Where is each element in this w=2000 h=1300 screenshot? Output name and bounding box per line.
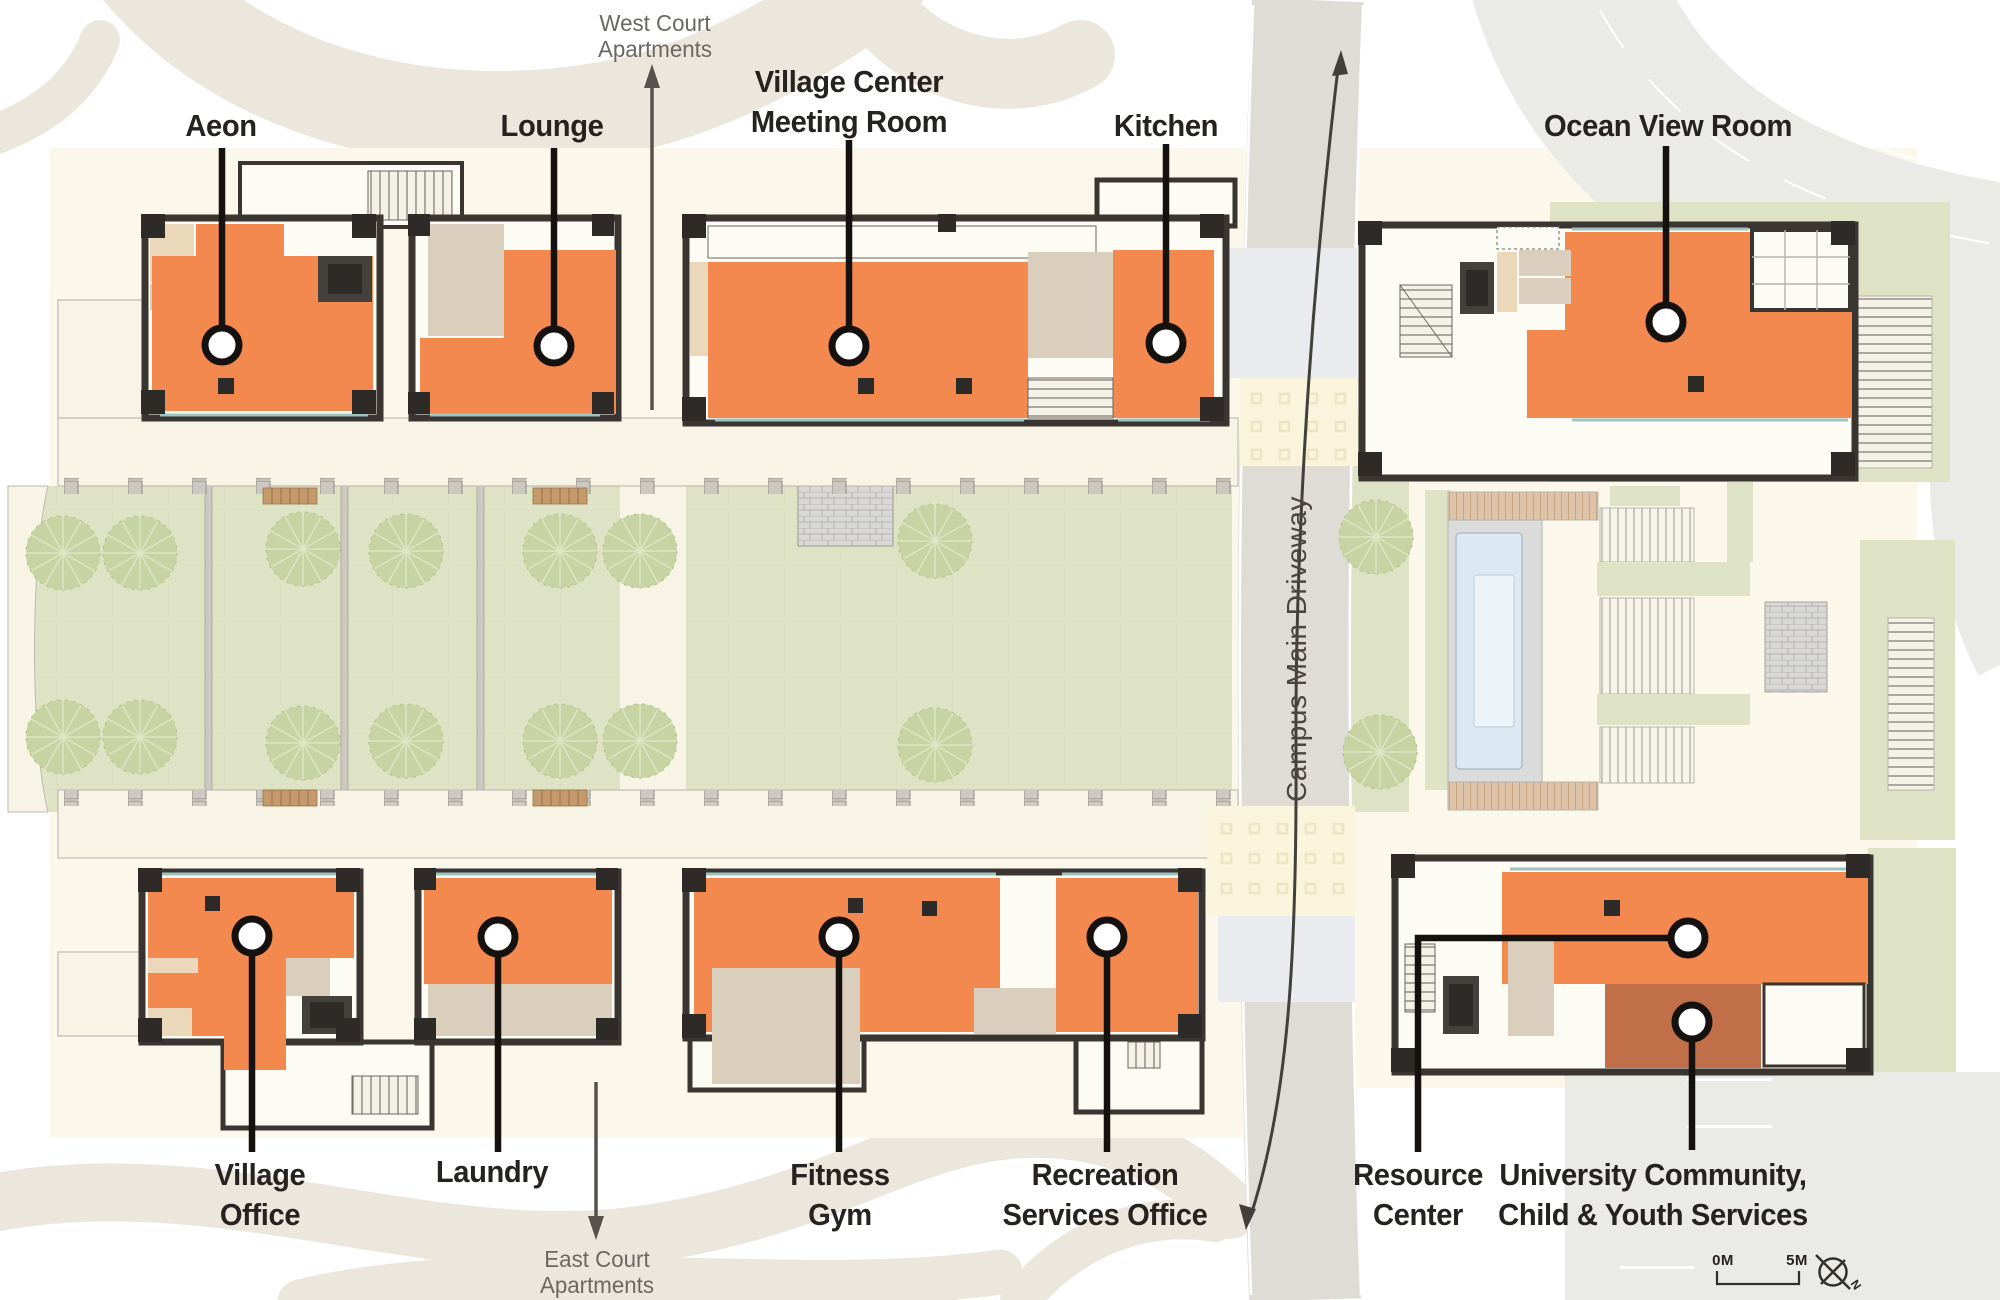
floor-plan-page: Aeon Lounge Village Center Meeting Room … xyxy=(0,0,2000,1300)
floor-plan-map xyxy=(0,0,2000,1300)
label-west-court: West Court Apartments xyxy=(598,10,712,62)
marker-kitchen xyxy=(1149,326,1183,360)
building-meeting-kitchen xyxy=(682,180,1235,423)
label-lounge: Lounge xyxy=(501,106,604,146)
marker-lounge xyxy=(537,329,571,363)
marker-aeon xyxy=(205,328,239,362)
marker-ocean xyxy=(1649,305,1683,339)
label-resource: Resource Center xyxy=(1353,1155,1483,1236)
marker-recreation xyxy=(1090,920,1124,954)
wood-deck xyxy=(1448,782,1598,810)
driveway-pad-bottom xyxy=(1218,916,1355,1002)
label-east-court: East Court Apartments xyxy=(540,1246,654,1298)
paver-square xyxy=(1765,602,1827,692)
plaza-stairs xyxy=(1600,508,1694,562)
label-aeon: Aeon xyxy=(185,106,256,146)
plaza-stairs xyxy=(1600,598,1694,694)
building-laundry xyxy=(414,868,618,1042)
marker-laundry xyxy=(481,920,515,954)
plaza-stairs xyxy=(1600,727,1694,783)
label-village-office: Village Office xyxy=(215,1155,306,1236)
driveway-pad-top xyxy=(1227,248,1357,378)
label-recreation: Recreation Services Office xyxy=(1003,1155,1208,1236)
marker-village-office xyxy=(235,919,269,953)
exterior-stairs xyxy=(1858,296,1932,468)
bench xyxy=(263,488,317,504)
building-lounge xyxy=(408,214,618,418)
label-campus-main-driveway: Campus Main Driveway xyxy=(1281,496,1313,802)
terrace-west-bottom xyxy=(58,952,144,1036)
label-fitness-gym: Fitness Gym xyxy=(790,1155,889,1236)
marker-fitness xyxy=(822,920,856,954)
building-resource-community xyxy=(1391,854,1870,1072)
marker-community xyxy=(1675,1005,1709,1039)
marker-resource xyxy=(1671,921,1705,955)
wood-deck xyxy=(1448,492,1598,520)
bench xyxy=(533,790,587,806)
label-kitchen: Kitchen xyxy=(1114,106,1218,146)
terrace-west-top xyxy=(58,300,148,418)
bench xyxy=(533,488,587,504)
label-meeting-room: Village Center Meeting Room xyxy=(751,62,947,143)
plaza-stairs xyxy=(1888,618,1934,790)
scale-start-label: 0M xyxy=(1712,1252,1734,1269)
label-ocean-view: Ocean View Room xyxy=(1544,106,1792,146)
building-ocean-view xyxy=(1358,221,1855,478)
label-laundry: Laundry xyxy=(436,1152,548,1192)
scale-end-label: 5M xyxy=(1786,1252,1808,1269)
marker-meeting xyxy=(832,329,866,363)
label-community: University Community, Child & Youth Serv… xyxy=(1498,1155,1808,1236)
bench xyxy=(263,790,317,806)
